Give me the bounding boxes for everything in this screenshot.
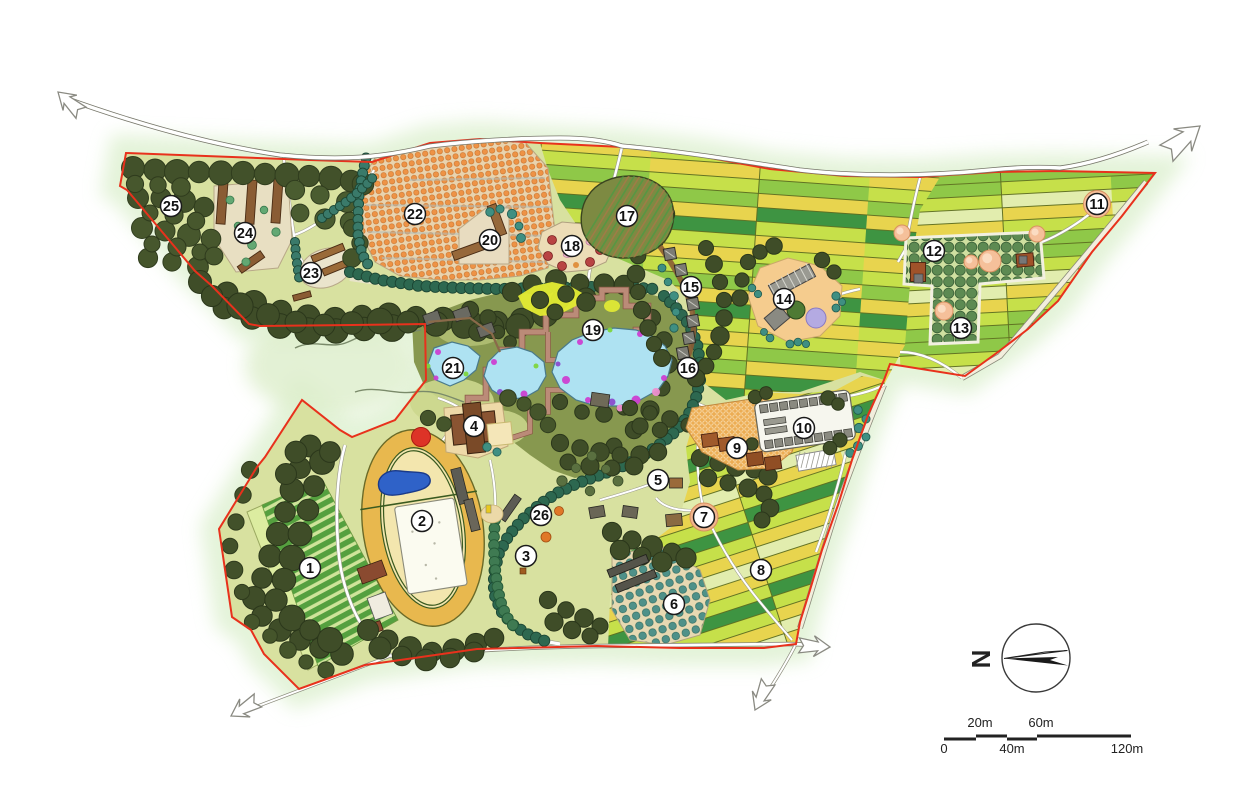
svg-text:20m: 20m — [967, 715, 992, 730]
svg-text:10: 10 — [796, 421, 812, 437]
svg-text:60m: 60m — [1028, 715, 1053, 730]
svg-text:40m: 40m — [999, 741, 1024, 756]
svg-text:9: 9 — [733, 441, 741, 457]
svg-text:21: 21 — [445, 361, 461, 377]
svg-text:26: 26 — [533, 508, 549, 524]
svg-text:25: 25 — [163, 199, 179, 215]
svg-text:1: 1 — [306, 561, 314, 577]
svg-text:17: 17 — [619, 209, 635, 225]
svg-text:2: 2 — [418, 514, 426, 530]
svg-text:16: 16 — [680, 361, 696, 377]
svg-text:N: N — [966, 650, 996, 669]
svg-text:20: 20 — [482, 233, 498, 249]
svg-text:14: 14 — [776, 292, 792, 308]
svg-text:4: 4 — [470, 419, 478, 435]
svg-text:3: 3 — [522, 549, 530, 565]
svg-text:22: 22 — [407, 207, 423, 223]
svg-text:7: 7 — [700, 510, 708, 526]
svg-text:120m: 120m — [1111, 741, 1144, 756]
svg-text:15: 15 — [683, 280, 699, 296]
svg-text:11: 11 — [1089, 197, 1104, 213]
svg-text:8: 8 — [757, 563, 765, 579]
svg-text:6: 6 — [670, 597, 678, 613]
svg-text:13: 13 — [953, 321, 969, 337]
svg-text:12: 12 — [926, 244, 942, 260]
svg-text:23: 23 — [303, 266, 319, 282]
svg-text:18: 18 — [564, 239, 580, 255]
svg-text:19: 19 — [585, 323, 601, 339]
svg-text:24: 24 — [237, 226, 253, 242]
svg-text:0: 0 — [940, 741, 947, 756]
svg-text:5: 5 — [654, 473, 662, 489]
